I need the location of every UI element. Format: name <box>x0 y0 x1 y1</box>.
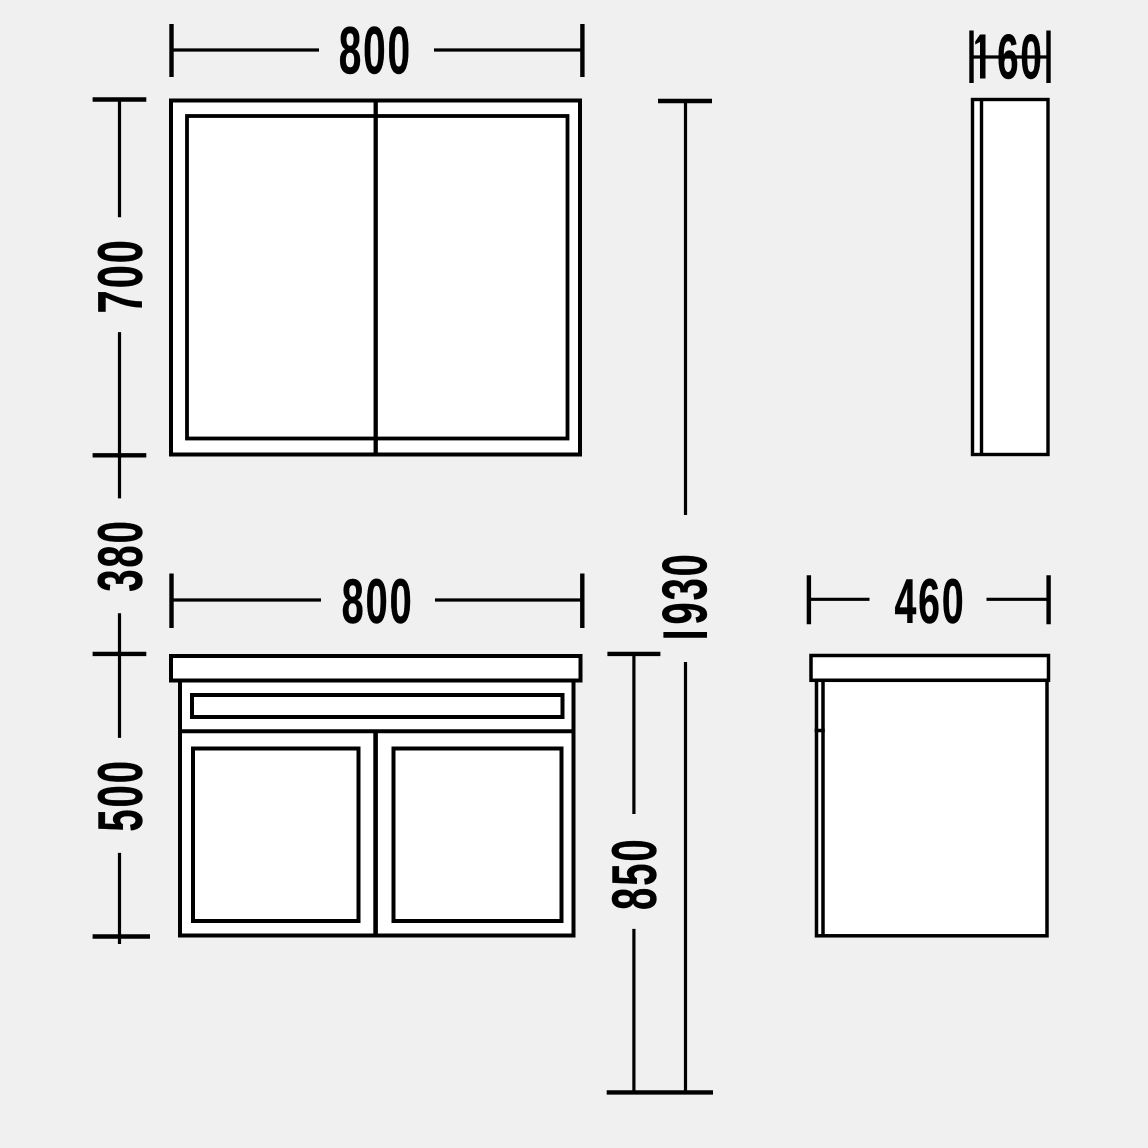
svg-text:700: 700 <box>86 238 156 313</box>
svg-text:380: 380 <box>86 519 156 592</box>
svg-text:500: 500 <box>86 759 156 832</box>
svg-text:460: 460 <box>895 568 966 638</box>
svg-text:800: 800 <box>342 567 414 638</box>
svg-text:60: 60 <box>997 23 1043 93</box>
svg-text:800: 800 <box>339 13 412 88</box>
svg-text:930: 930 <box>650 552 721 624</box>
svg-text:850: 850 <box>600 837 670 910</box>
